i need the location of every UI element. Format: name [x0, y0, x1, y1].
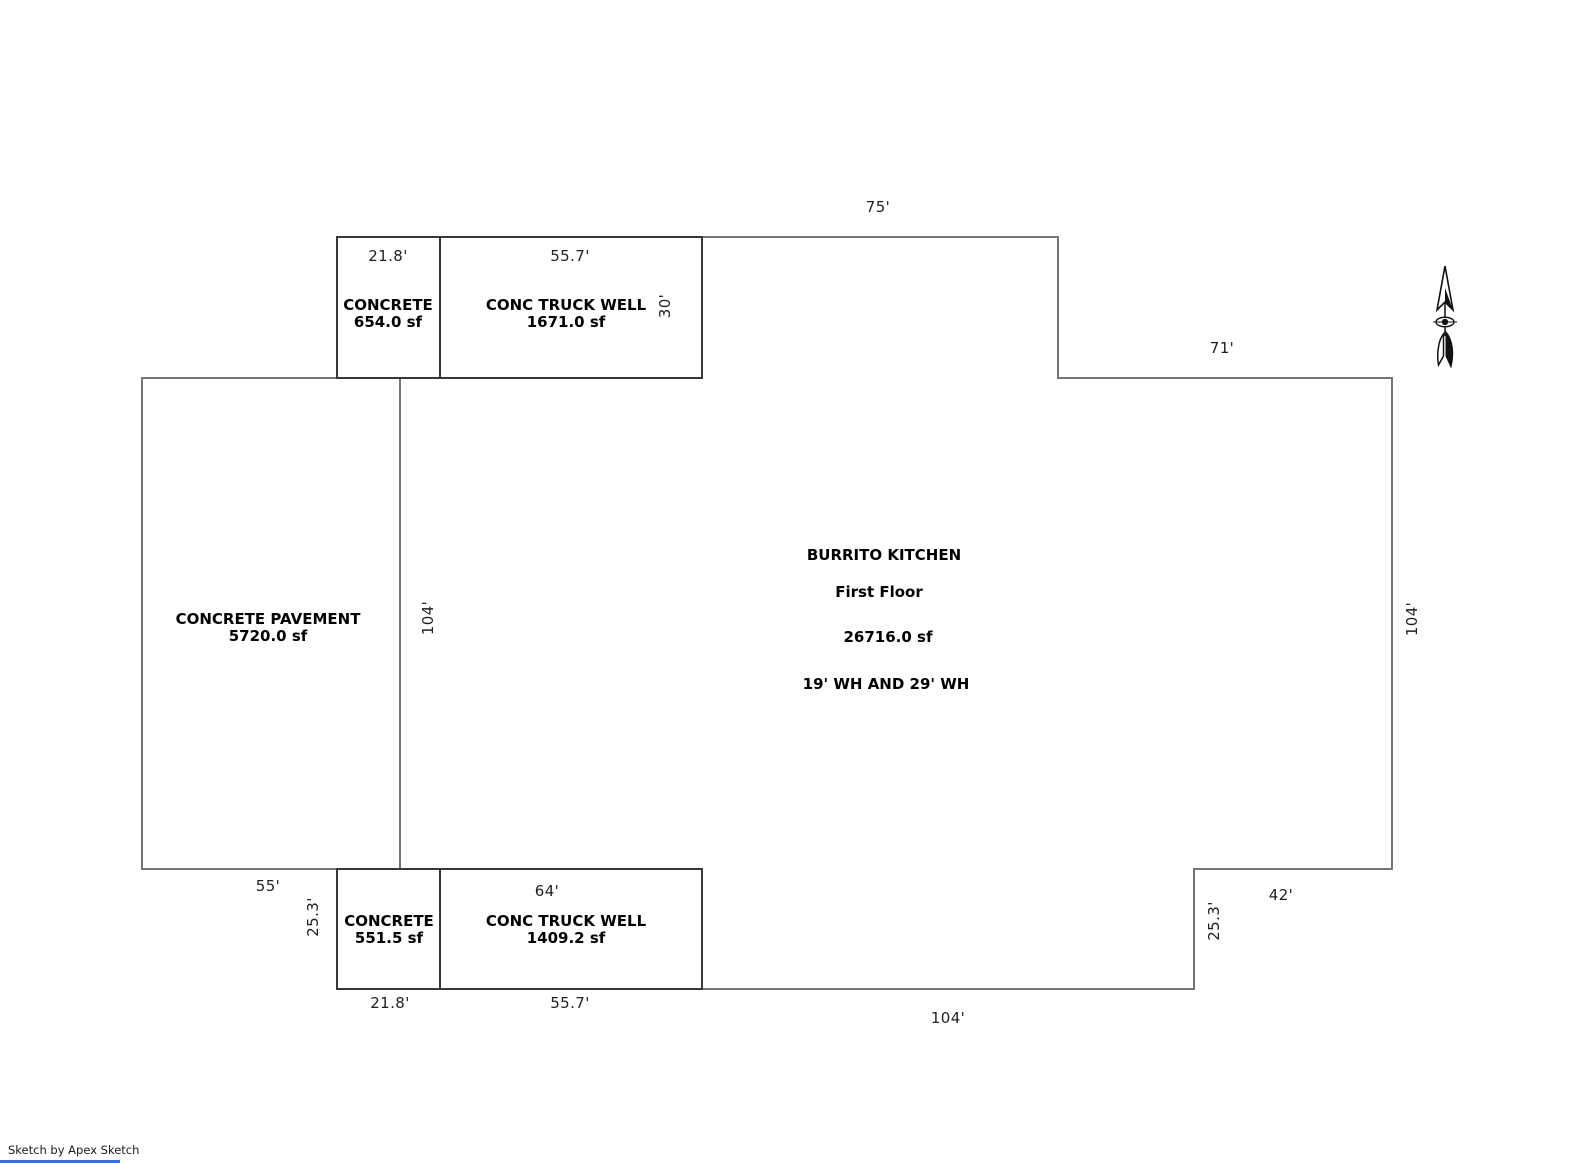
area-label-truck-well-top: CONC TRUCK WELL 1671.0 sf [486, 297, 646, 331]
dimension-bottom-truck-well-width: 55.7' [550, 994, 590, 1012]
area-size: 654.0 sf [343, 314, 433, 331]
area-name: CONC TRUCK WELL [486, 297, 646, 314]
area-name: CONC TRUCK WELL [486, 913, 646, 930]
area-size: 1671.0 sf [486, 314, 646, 331]
dimension-bottom-well-64: 64' [535, 882, 559, 900]
area-name: CONCRETE [344, 913, 434, 930]
floor-plan-sketch: BURRITO KITCHEN First Floor 26716.0 sf 1… [0, 0, 1585, 1163]
sketch-credit: Sketch by Apex Sketch [8, 1143, 139, 1157]
area-size: 1409.2 sf [486, 930, 646, 947]
area-name: CONCRETE [343, 297, 433, 314]
building-area: 26716.0 sf [844, 628, 933, 646]
area-name: CONCRETE PAVEMENT [176, 611, 361, 628]
area-size: 5720.0 sf [176, 628, 361, 645]
dimension-sw-25-3: 25.3' [304, 897, 322, 937]
dimension-east-wall-104: 104' [1403, 602, 1421, 636]
area-label-concrete-pavement: CONCRETE PAVEMENT 5720.0 sf [176, 611, 361, 645]
dimension-bottom-104: 104' [931, 1009, 965, 1027]
dimension-truck-well-depth: 30' [656, 294, 674, 318]
building-wall-height-note: 19' WH AND 29' WH [803, 675, 970, 693]
building-name: BURRITO KITCHEN [807, 546, 961, 564]
area-label-truck-well-bottom: CONC TRUCK WELL 1409.2 sf [486, 913, 646, 947]
area-label-concrete-top: CONCRETE 654.0 sf [343, 297, 433, 331]
building-floor: First Floor [835, 583, 923, 601]
area-label-concrete-bottom: CONCRETE 551.5 sf [344, 913, 434, 947]
dimension-top-truck-well-width: 55.7' [550, 247, 590, 265]
dimension-pavement-bottom-55: 55' [256, 877, 280, 895]
dimension-se-25-3: 25.3' [1205, 901, 1223, 941]
area-size: 551.5 sf [344, 930, 434, 947]
dimension-right-71: 71' [1210, 339, 1234, 357]
dimension-top-concrete-width: 21.8' [368, 247, 408, 265]
north-arrow-icon [1428, 264, 1462, 368]
dimension-bottom-concrete-width: 21.8' [370, 994, 410, 1012]
attachment-rects [337, 237, 702, 989]
dimension-west-wall-104: 104' [419, 601, 437, 635]
dimension-top-75: 75' [866, 198, 890, 216]
dimension-se-42: 42' [1269, 886, 1293, 904]
floor-plan-lines [0, 0, 1585, 1163]
